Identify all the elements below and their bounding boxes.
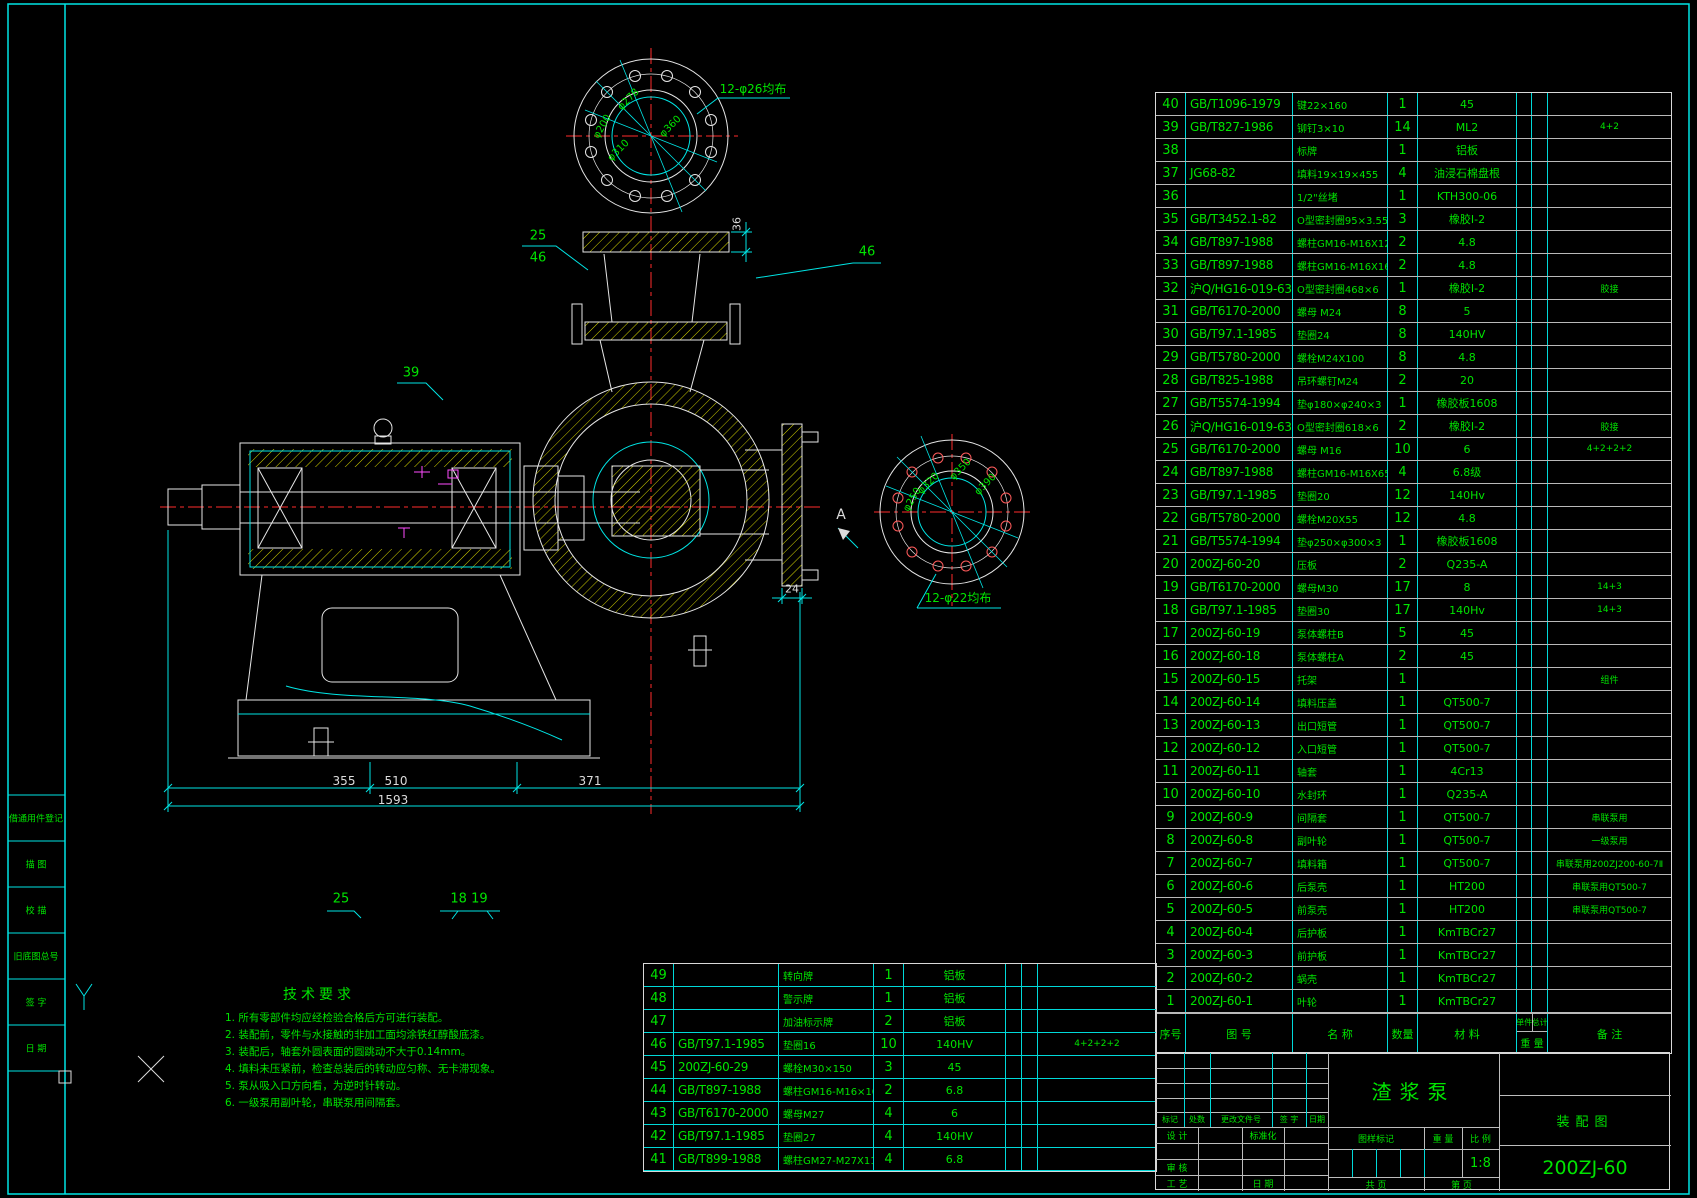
- bom-header-no: 序号: [1156, 1014, 1186, 1053]
- bom-cell-no: 15: [1156, 668, 1186, 690]
- bom-cell-no: 29: [1156, 346, 1186, 368]
- tb-label-design: 设 计: [1156, 1127, 1198, 1143]
- bom-row: 21 GB/T5574-1994 垫φ250×φ300×3 1 橡胶板1608: [1156, 530, 1671, 553]
- bom-cell-unit-weight: [1517, 162, 1532, 184]
- bom-cell-no: 25: [1156, 438, 1186, 460]
- technical-requirements: 技术要求 1. 所有零部件均应经检验合格后方可进行装配。 2. 装配前，零件与水…: [225, 984, 605, 1112]
- bom-cell-remark: 串联泵用QT500-7: [1548, 898, 1671, 920]
- bearing-housing: [240, 419, 584, 575]
- bom-cell-remark: [1548, 231, 1671, 253]
- bom-cell-no: 19: [1156, 576, 1186, 598]
- tech-req-item: 5. 泵从吸入口方向看，为逆时针转动。: [225, 1078, 605, 1095]
- bom-cell-total-weight: [1532, 254, 1548, 276]
- bom-cell-no: 40: [1156, 93, 1186, 115]
- bom-cell-qty: 1: [874, 987, 904, 1009]
- bom-row: 4 200ZJ-60-4 后护板 1 KmTBCr27: [1156, 921, 1671, 944]
- bom-cell-qty: 4: [874, 1102, 904, 1124]
- bom-cell-qty: 1: [1388, 760, 1418, 782]
- bom-cell-remark: 组件: [1548, 668, 1671, 690]
- bom-cell-total-weight: [1532, 645, 1548, 667]
- bom-cell-unit-weight: [1006, 987, 1022, 1009]
- dimension-lines: [164, 98, 1001, 919]
- tb-label-date: 日期: [1306, 1112, 1328, 1127]
- bom-cell-no: 33: [1156, 254, 1186, 276]
- bom-row: 43 GB/T6170-2000 螺母M27 4 6: [644, 1102, 1156, 1125]
- bom-cell-no: 5: [1156, 898, 1186, 920]
- bom-cell-no: 37: [1156, 162, 1186, 184]
- bom-cell-total-weight: [1532, 668, 1548, 690]
- bom-cell-qty: 5: [1388, 622, 1418, 644]
- bom-row: 49 转向牌 1 铝板: [644, 964, 1156, 987]
- bom-row: 23 GB/T97.1-1985 垫圈20 12 140Hv: [1156, 484, 1671, 507]
- bom-cell-qty: 1: [1388, 392, 1418, 414]
- bom-cell-qty: 17: [1388, 599, 1418, 621]
- bom-cell-material: 橡胶I-2: [1418, 415, 1517, 437]
- bom-cell-remark: [1548, 622, 1671, 644]
- bom-cell-material: ML2: [1418, 116, 1517, 138]
- bom-row: 36 1/2"丝堵 1 KTH300-06: [1156, 185, 1671, 208]
- bom-cell-material: 8: [1418, 576, 1517, 598]
- bom-cell-code: GB/T97.1-1985: [1186, 484, 1293, 506]
- bom-cell-total-weight: [1532, 162, 1548, 184]
- bom-cell-code: 200ZJ-60-6: [1186, 875, 1293, 897]
- bom-cell-code: 200ZJ-60-18: [1186, 645, 1293, 667]
- bom-cell-total-weight: [1532, 277, 1548, 299]
- scale-value: 1:8: [1462, 1149, 1499, 1177]
- bom-cell-name: 泵体螺柱B: [1293, 622, 1388, 644]
- bom-cell-qty: 8: [1388, 323, 1418, 345]
- bom-cell-name: 螺柱GM16-M16X160: [1293, 254, 1388, 276]
- bom-cell-total-weight: [1022, 1079, 1038, 1101]
- bom-header-name: 名 称: [1293, 1014, 1388, 1053]
- bom-cell-unit-weight: [1517, 921, 1532, 943]
- bom-cell-no: 43: [644, 1102, 674, 1124]
- bom-cell-name: 垫圈24: [1293, 323, 1388, 345]
- bom-cell-name: 螺柱GM16-M16×100: [779, 1079, 874, 1101]
- bom-cell-code: 200ZJ-60-11: [1186, 760, 1293, 782]
- bom-cell-total-weight: [1532, 599, 1548, 621]
- bom-cell-name: 垫圈27: [779, 1125, 874, 1147]
- bom-cell-qty: 3: [1388, 208, 1418, 230]
- bom-cell-total-weight: [1022, 987, 1038, 1009]
- bom-cell-material: 140Hv: [1418, 599, 1517, 621]
- bom-cell-code: 200ZJ-60-12: [1186, 737, 1293, 759]
- bom-cell-qty: 1: [1388, 530, 1418, 552]
- bom-cell-material: 45: [1418, 645, 1517, 667]
- bom-cell-no: 34: [1156, 231, 1186, 253]
- bom-cell-code: [674, 964, 779, 986]
- bom-cell-no: 46: [644, 1033, 674, 1055]
- tech-req-title: 技术要求: [283, 984, 605, 1004]
- bom-cell-remark: [1548, 760, 1671, 782]
- tb-label-change-file: 更改文件号: [1210, 1112, 1272, 1127]
- bom-cell-remark: [1548, 254, 1671, 276]
- bom-row: 40 GB/T1096-1979 键22×160 1 45: [1156, 93, 1671, 116]
- bom-cell-no: 16: [1156, 645, 1186, 667]
- bom-cell-unit-weight: [1517, 553, 1532, 575]
- tb-label-scale: 比 例: [1462, 1127, 1499, 1149]
- bom-cell-total-weight: [1532, 875, 1548, 897]
- bom-cell-name: 垫圈16: [779, 1033, 874, 1055]
- bom-cell-qty: 2: [1388, 254, 1418, 276]
- bom-cell-material: 6.8级: [1418, 461, 1517, 483]
- bom-cell-no: 17: [1156, 622, 1186, 644]
- bom-cell-code: GB/T827-1986: [1186, 116, 1293, 138]
- bolt-note-right: 12-φ22均布: [925, 592, 992, 604]
- bom-cell-name: 键22×160: [1293, 93, 1388, 115]
- bom-cell-remark: 串联泵用: [1548, 806, 1671, 828]
- bom-cell-material: 4.8: [1418, 507, 1517, 529]
- bom-cell-total-weight: [1022, 1125, 1038, 1147]
- bom-cell-no: 9: [1156, 806, 1186, 828]
- bom-cell-name: 水封环: [1293, 783, 1388, 805]
- bom-cell-remark: 4+2+2+2: [1548, 438, 1671, 460]
- bom-cell-material: KmTBCr27: [1418, 990, 1517, 1012]
- sidebar-item-signature: 签 字: [26, 996, 47, 1009]
- bom-cell-material: 140HV: [904, 1125, 1006, 1147]
- bom-cell-total-weight: [1532, 714, 1548, 736]
- sidebar-item-tracing: 描 图: [26, 858, 47, 871]
- bom-cell-unit-weight: [1517, 392, 1532, 414]
- bom-row: 2 200ZJ-60-2 蜗壳 1 KmTBCr27: [1156, 967, 1671, 990]
- bom-cell-material: Q235-A: [1418, 553, 1517, 575]
- bom-cell-unit-weight: [1517, 530, 1532, 552]
- bom-cell-no: 24: [1156, 461, 1186, 483]
- bom-cell-material: 铝板: [904, 987, 1006, 1009]
- bom-cell-name: 叶轮: [1293, 990, 1388, 1012]
- bom-cell-remark: [1548, 967, 1671, 989]
- balloon-46b: 46: [859, 246, 876, 259]
- bom-cell-qty: 1: [1388, 668, 1418, 690]
- bom-cell-remark: [1038, 1056, 1156, 1078]
- sidebar-item-borrow-record: 借通用件登记: [9, 812, 63, 825]
- bom-cell-remark: [1548, 737, 1671, 759]
- bom-cell-material: KTH300-06: [1418, 185, 1517, 207]
- sheet-type: 装配图: [1499, 1095, 1671, 1145]
- bom-cell-total-weight: [1532, 139, 1548, 161]
- bom-cell-code: [1186, 185, 1293, 207]
- bom-cell-code: 200ZJ-60-14: [1186, 691, 1293, 713]
- bom-cell-qty: 1: [1388, 806, 1418, 828]
- bom-cell-code: JG68-82: [1186, 162, 1293, 184]
- bom-row: 37 JG68-82 填料19×19×455 4 油浸石棉盘根: [1156, 162, 1671, 185]
- bom-cell-material: HT200: [1418, 898, 1517, 920]
- bom-cell-qty: 1: [1388, 691, 1418, 713]
- bom-cell-total-weight: [1022, 1102, 1038, 1124]
- bom-cell-remark: 14+3: [1548, 599, 1671, 621]
- bom-cell-no: 21: [1156, 530, 1186, 552]
- bom-cell-no: 13: [1156, 714, 1186, 736]
- bom-cell-unit-weight: [1517, 829, 1532, 851]
- bom-cell-total-weight: [1532, 921, 1548, 943]
- bom-cell-no: 8: [1156, 829, 1186, 851]
- bom-cell-material: 4.8: [1418, 231, 1517, 253]
- bom-cell-material: 45: [904, 1056, 1006, 1078]
- bom-cell-remark: 串联泵用QT500-7: [1548, 875, 1671, 897]
- part-name: 渣浆泵: [1328, 1053, 1499, 1127]
- bom-cell-code: 200ZJ-60-8: [1186, 829, 1293, 851]
- bom-cell-code: [674, 987, 779, 1009]
- bom-cell-no: 12: [1156, 737, 1186, 759]
- bom-cell-name: 螺柱GM27-M27X110: [779, 1148, 874, 1170]
- bom-cell-total-weight: [1022, 1033, 1038, 1055]
- bom-cell-code: GB/T97.1-1985: [674, 1125, 779, 1147]
- bom-header-total: 总计: [1533, 1014, 1548, 1031]
- bom-cell-material: 铝板: [904, 964, 1006, 986]
- bom-cell-unit-weight: [1006, 964, 1022, 986]
- section-label-a: A: [836, 508, 846, 522]
- bom-cell-remark: [1548, 484, 1671, 506]
- bom-cell-unit-weight: [1517, 208, 1532, 230]
- bom-cell-material: 铝板: [1418, 139, 1517, 161]
- bom-cell-qty: 1: [1388, 898, 1418, 920]
- bom-cell-total-weight: [1532, 185, 1548, 207]
- bom-cell-remark: [1548, 990, 1671, 1012]
- bom-cell-name: 泵体螺柱A: [1293, 645, 1388, 667]
- bom-cell-total-weight: [1022, 964, 1038, 986]
- bom-cell-material: 6: [1418, 438, 1517, 460]
- bom-cell-unit-weight: [1517, 990, 1532, 1012]
- bom-cell-qty: 2: [1388, 553, 1418, 575]
- bom-cell-no: 28: [1156, 369, 1186, 391]
- bom-cell-code: GB/T6170-2000: [1186, 576, 1293, 598]
- tb-label-count: 处数: [1184, 1112, 1210, 1127]
- bom-row: 48 警示牌 1 铝板: [644, 987, 1156, 1010]
- bom-cell-material: QT500-7: [1418, 852, 1517, 874]
- bom-cell-remark: [1038, 1079, 1156, 1101]
- bom-cell-remark: [1038, 987, 1156, 1009]
- bom-row: 41 GB/T899-1988 螺柱GM27-M27X110 4 6.8: [644, 1148, 1156, 1171]
- sidebar-item-check-tracing: 校 描: [26, 904, 47, 917]
- bom-cell-material: 140Hv: [1418, 484, 1517, 506]
- bom-cell-remark: [1548, 323, 1671, 345]
- bom-cell-total-weight: [1532, 553, 1548, 575]
- balloon-25: 25: [530, 230, 547, 243]
- bom-cell-unit-weight: [1517, 668, 1532, 690]
- bom-cell-code: 200ZJ-60-7: [1186, 852, 1293, 874]
- bom-cell-total-weight: [1532, 829, 1548, 851]
- bom-row: 38 标牌 1 铝板: [1156, 139, 1671, 162]
- bom-cell-material: QT500-7: [1418, 806, 1517, 828]
- bom-cell-code: GB/T825-1988: [1186, 369, 1293, 391]
- tb-label-mark: 标记: [1156, 1112, 1184, 1127]
- bom-cell-material: Q235-A: [1418, 783, 1517, 805]
- bom-cell-no: 14: [1156, 691, 1186, 713]
- bom-cell-unit-weight: [1517, 967, 1532, 989]
- bom-cell-material: 橡胶板1608: [1418, 530, 1517, 552]
- bom-cell-material: 6: [904, 1102, 1006, 1124]
- bom-cell-qty: 1: [1388, 921, 1418, 943]
- sidebar-item-date: 日 期: [26, 1042, 47, 1055]
- bolt-note-top: 12-φ26均布: [720, 83, 787, 95]
- bom-cell-qty: 4: [1388, 461, 1418, 483]
- tb-label-page-no: 第 页: [1424, 1177, 1499, 1191]
- bom-row: 16 200ZJ-60-18 泵体螺柱A 2 45: [1156, 645, 1671, 668]
- bom-cell-qty: 17: [1388, 576, 1418, 598]
- bom-cell-material: 橡胶I-2: [1418, 277, 1517, 299]
- bom-cell-unit-weight: [1517, 185, 1532, 207]
- bom-cell-total-weight: [1532, 461, 1548, 483]
- bom-cell-name: 填料19×19×455: [1293, 162, 1388, 184]
- bom-cell-code: 200ZJ-60-15: [1186, 668, 1293, 690]
- bom-cell-name: 标牌: [1293, 139, 1388, 161]
- bom-cell-no: 20: [1156, 553, 1186, 575]
- bom-cell-qty: 8: [1388, 300, 1418, 322]
- bom-cell-remark: [1548, 162, 1671, 184]
- bom-cell-name: 螺柱GM16-M16X120: [1293, 231, 1388, 253]
- bom-cell-no: 3: [1156, 944, 1186, 966]
- bom-cell-material: [1418, 668, 1517, 690]
- bom-cell-unit-weight: [1006, 1010, 1022, 1032]
- bom-cell-unit-weight: [1517, 254, 1532, 276]
- bom-cell-unit-weight: [1517, 691, 1532, 713]
- bom-cell-total-weight: [1532, 300, 1548, 322]
- bom-cell-remark: [1548, 944, 1671, 966]
- bom-cell-remark: [1548, 921, 1671, 943]
- bom-cell-code: GB/T5574-1994: [1186, 530, 1293, 552]
- dim-label-371: 371: [579, 775, 602, 787]
- bom-cell-unit-weight: [1517, 438, 1532, 460]
- bom-cell-unit-weight: [1517, 461, 1532, 483]
- bom-row: 44 GB/T897-1988 螺柱GM16-M16×100 2 6.8: [644, 1079, 1156, 1102]
- tech-req-item: 1. 所有零部件均应经检验合格后方可进行装配。: [225, 1010, 605, 1027]
- bom-row: 10 200ZJ-60-10 水封环 1 Q235-A: [1156, 783, 1671, 806]
- bom-cell-code: GB/T6170-2000: [1186, 438, 1293, 460]
- bom-cell-no: 7: [1156, 852, 1186, 874]
- bom-cell-total-weight: [1532, 967, 1548, 989]
- drawing-number: 200ZJ-60: [1499, 1145, 1671, 1191]
- bom-cell-name: 1/2"丝堵: [1293, 185, 1388, 207]
- bom-cell-qty: 1: [1388, 714, 1418, 736]
- bom-cell-code: 200ZJ-60-5: [1186, 898, 1293, 920]
- bom-cell-qty: 2: [874, 1079, 904, 1101]
- tech-req-item: 2. 装配前，零件与水接触的非加工面均涂铁红醇酸底漆。: [225, 1027, 605, 1044]
- bom-cell-name: 填料压盖: [1293, 691, 1388, 713]
- bom-cell-unit-weight: [1517, 507, 1532, 529]
- bom-cell-no: 36: [1156, 185, 1186, 207]
- bom-cell-no: 30: [1156, 323, 1186, 345]
- bom-row: 46 GB/T97.1-1985 垫圈16 10 140HV 4+2+2+2: [644, 1033, 1156, 1056]
- bom-cell-code: GB/T97.1-1985: [1186, 599, 1293, 621]
- bom-cell-qty: 4: [874, 1125, 904, 1147]
- bom-cell-no: 6: [1156, 875, 1186, 897]
- tech-req-item: 6. 一级泵用副叶轮，串联泵用间隔套。: [225, 1095, 605, 1112]
- tb-label-mark-header: 图样标记: [1328, 1127, 1424, 1149]
- bom-cell-qty: 1: [1388, 967, 1418, 989]
- bom-cell-total-weight: [1532, 990, 1548, 1012]
- bom-cell-code: GB/T897-1988: [1186, 254, 1293, 276]
- bom-cell-total-weight: [1532, 622, 1548, 644]
- bom-cell-unit-weight: [1517, 622, 1532, 644]
- bom-cell-material: 140HV: [1418, 323, 1517, 345]
- sidebar-grid: [8, 795, 65, 1071]
- bom-cell-name: 后泵壳: [1293, 875, 1388, 897]
- bom-cell-code: GB/T5574-1994: [1186, 392, 1293, 414]
- bom-cell-total-weight: [1532, 507, 1548, 529]
- bom-cell-name: 后护板: [1293, 921, 1388, 943]
- bom-cell-no: 10: [1156, 783, 1186, 805]
- bom-cell-no: 48: [644, 987, 674, 1009]
- bom-cell-material: QT500-7: [1418, 714, 1517, 736]
- bom-cell-code: 200ZJ-60-1: [1186, 990, 1293, 1012]
- bom-cell-code: GB/T97.1-1985: [674, 1033, 779, 1055]
- bom-header-row: 序号 图 号 名 称 数量 材 料 单件总计 重 量 备 注: [1156, 1013, 1671, 1053]
- bom-cell-total-weight: [1532, 898, 1548, 920]
- bom-cell-code: 沪Q/HG16-019-63: [1186, 415, 1293, 437]
- bom-cell-remark: [1038, 1102, 1156, 1124]
- tb-label-audit: 审 核: [1156, 1159, 1198, 1175]
- bom-cell-name: 垫圈30: [1293, 599, 1388, 621]
- bom-cell-material: 5: [1418, 300, 1517, 322]
- bom-header-unit: 单件: [1517, 1014, 1533, 1031]
- bom-cell-total-weight: [1532, 369, 1548, 391]
- bom-cell-unit-weight: [1517, 645, 1532, 667]
- centerlines: [160, 48, 1032, 814]
- bom-cell-qty: 1: [1388, 944, 1418, 966]
- bom-cell-total-weight: [1532, 438, 1548, 460]
- bom-cell-name: 转向牌: [779, 964, 874, 986]
- bom-row: 30 GB/T97.1-1985 垫圈24 8 140HV: [1156, 323, 1671, 346]
- bom-cell-qty: 2: [1388, 231, 1418, 253]
- bom-cell-no: 23: [1156, 484, 1186, 506]
- bom-cell-no: 44: [644, 1079, 674, 1101]
- bom-row: 13 200ZJ-60-13 出口短管 1 QT500-7: [1156, 714, 1671, 737]
- dim-label-510: 510: [385, 775, 408, 787]
- bom-cell-unit-weight: [1517, 576, 1532, 598]
- fit-marks: [398, 466, 458, 538]
- bom-row: 17 200ZJ-60-19 泵体螺柱B 5 45: [1156, 622, 1671, 645]
- bom-cell-total-weight: [1532, 783, 1548, 805]
- bom-cell-no: 22: [1156, 507, 1186, 529]
- discharge-pipe: [572, 232, 740, 392]
- bom-cell-no: 32: [1156, 277, 1186, 299]
- bom-cell-code: GB/T3452.1-82: [1186, 208, 1293, 230]
- bom-cell-unit-weight: [1006, 1125, 1022, 1147]
- bom-cell-name: O型密封圈618×6: [1293, 415, 1388, 437]
- bom-row: 3 200ZJ-60-3 前护板 1 KmTBCr27: [1156, 944, 1671, 967]
- bom-header-weight: 单件总计 重 量: [1517, 1014, 1548, 1053]
- bom-cell-remark: 一级泵用: [1548, 829, 1671, 851]
- bom-cell-unit-weight: [1517, 806, 1532, 828]
- bom-cell-no: 4: [1156, 921, 1186, 943]
- bom-cell-remark: [1548, 553, 1671, 575]
- bom-row: 42 GB/T97.1-1985 垫圈27 4 140HV: [644, 1125, 1156, 1148]
- bom-cell-code: 200ZJ-60-13: [1186, 714, 1293, 736]
- tb-label-weight: 重 量: [1424, 1127, 1462, 1149]
- bom-cell-remark: [1548, 645, 1671, 667]
- bom-cell-name: 警示牌: [779, 987, 874, 1009]
- bom-cell-total-weight: [1532, 760, 1548, 782]
- bom-cell-material: 橡胶板1608: [1418, 392, 1517, 414]
- bom-cell-qty: 10: [874, 1033, 904, 1055]
- bom-cell-code: GB/T899-1988: [674, 1148, 779, 1170]
- bom-cell-total-weight: [1532, 415, 1548, 437]
- bom-table-right: 40 GB/T1096-1979 键22×160 1 45 39 GB/T827…: [1155, 92, 1672, 1054]
- bom-row: 35 GB/T3452.1-82 O型密封圈95×3.55 3 橡胶I-2: [1156, 208, 1671, 231]
- bom-cell-no: 27: [1156, 392, 1186, 414]
- bom-cell-unit-weight: [1517, 875, 1532, 897]
- bom-cell-remark: 胶接: [1548, 415, 1671, 437]
- bom-row: 5 200ZJ-60-5 前泵壳 1 HT200 串联泵用QT500-7: [1156, 898, 1671, 921]
- bom-cell-code: 200ZJ-60-29: [674, 1056, 779, 1078]
- bom-cell-total-weight: [1022, 1148, 1038, 1170]
- bom-cell-qty: 10: [1388, 438, 1418, 460]
- bom-cell-remark: 串联泵用200ZJ200-60-7Ⅱ: [1548, 852, 1671, 874]
- bom-cell-unit-weight: [1517, 323, 1532, 345]
- bom-cell-total-weight: [1532, 116, 1548, 138]
- bom-cell-name: 垫圈20: [1293, 484, 1388, 506]
- bom-cell-remark: [1038, 1148, 1156, 1170]
